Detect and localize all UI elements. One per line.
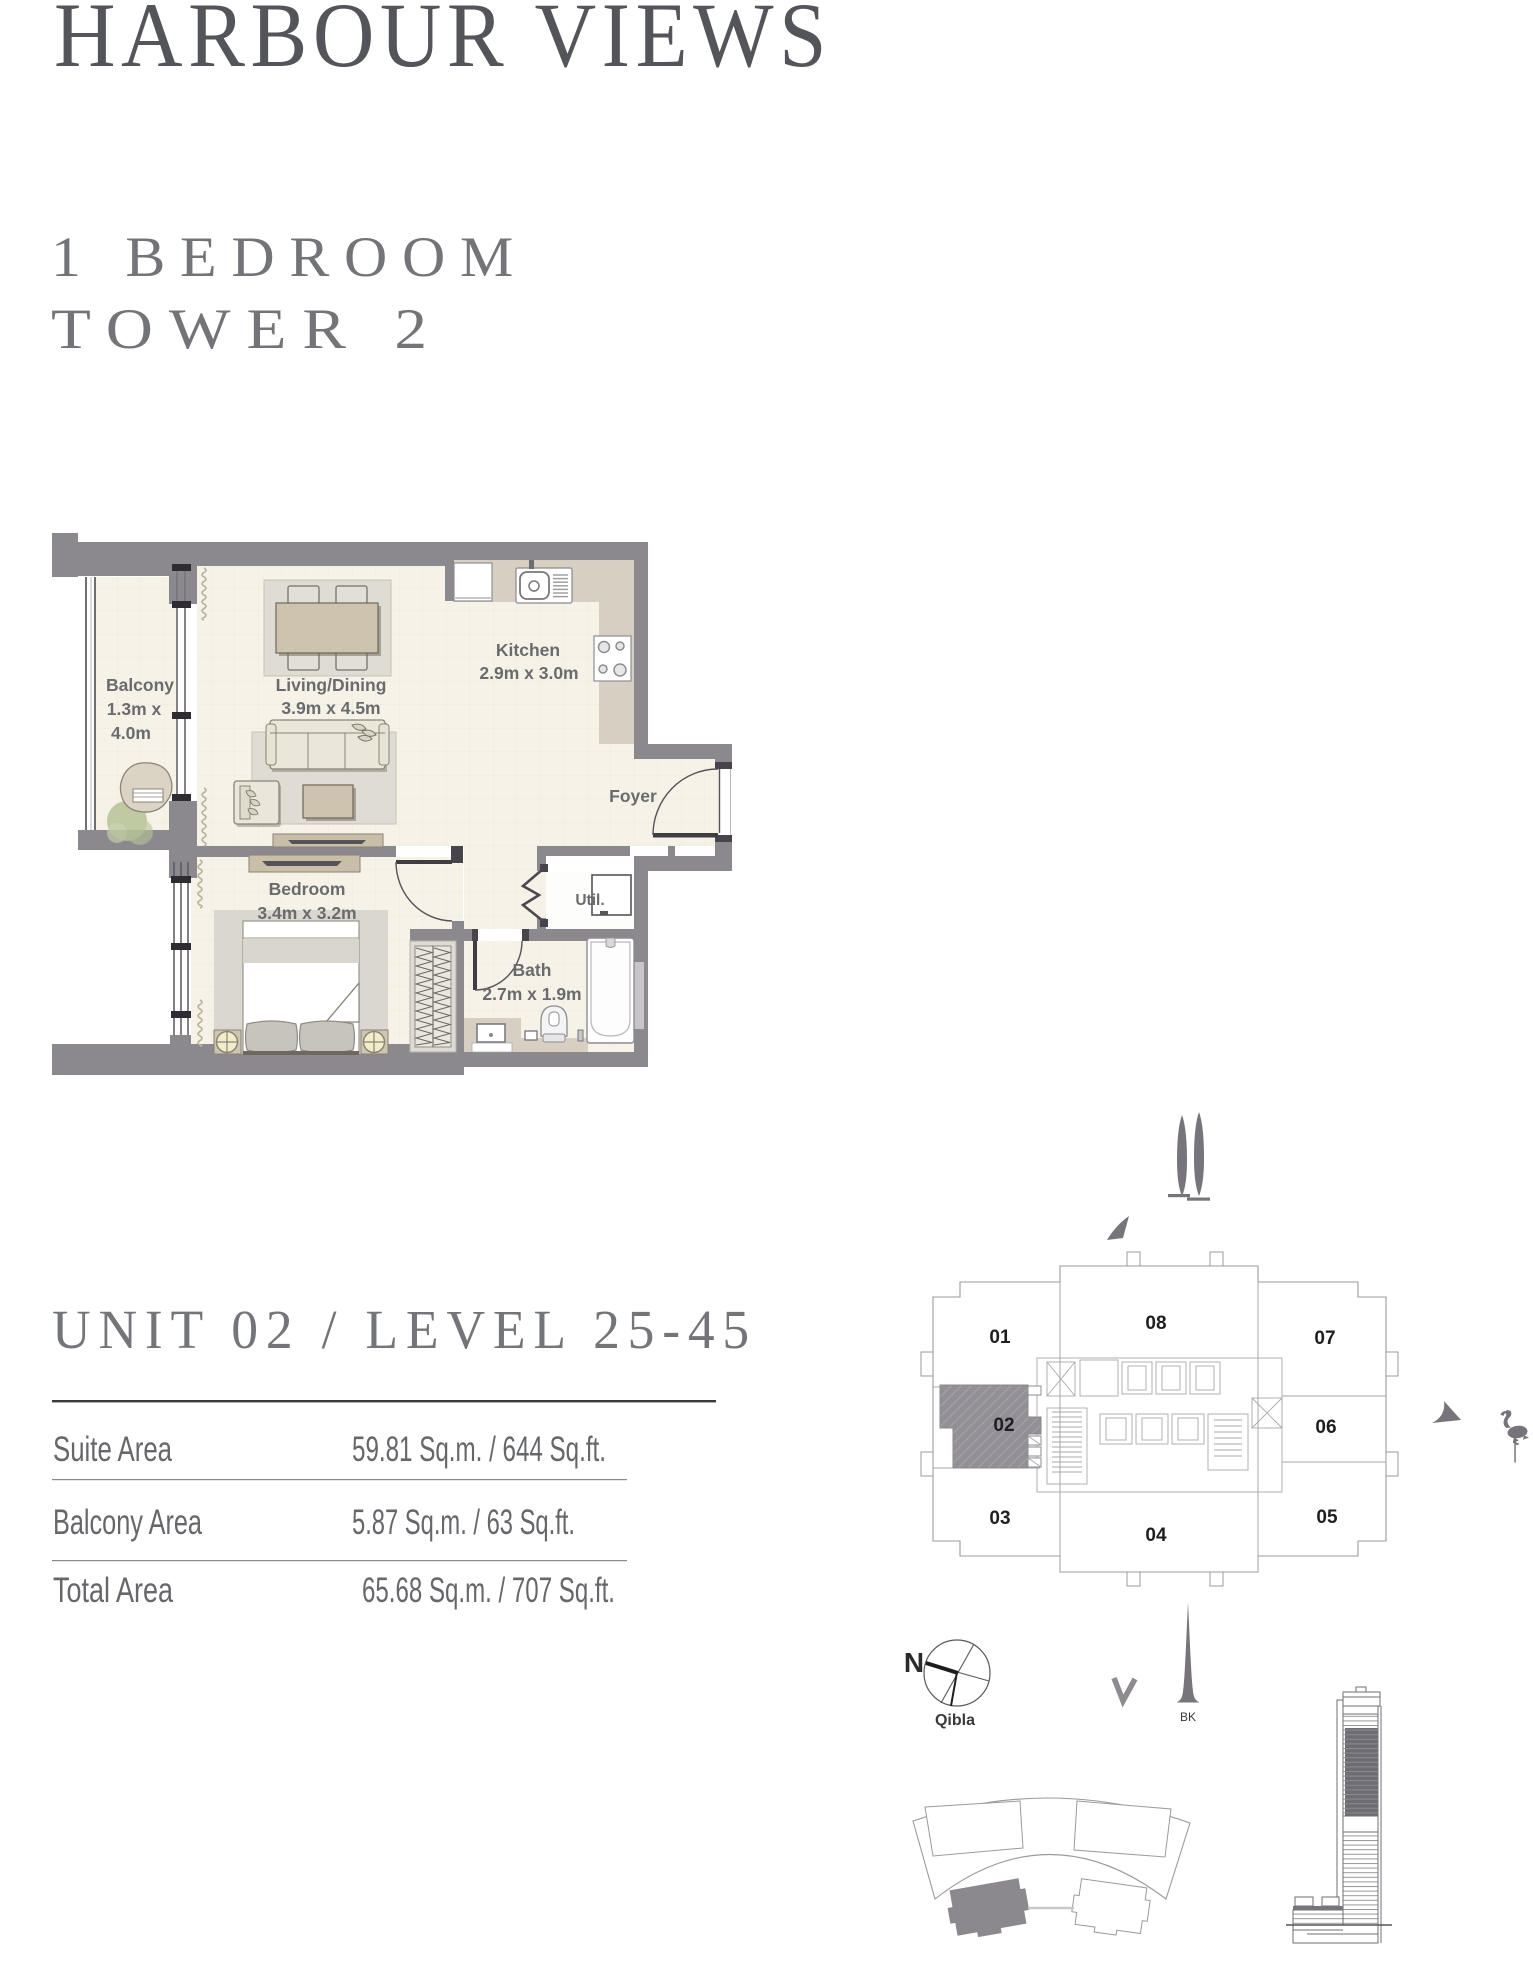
svg-text:Balcony: Balcony bbox=[106, 675, 174, 695]
svg-text:59.81 Sq.m. / 644 Sq.ft.: 59.81 Sq.m. / 644 Sq.ft. bbox=[352, 1430, 606, 1469]
svg-text:01: 01 bbox=[989, 1327, 1011, 1348]
svg-text:08: 08 bbox=[1145, 1313, 1166, 1334]
svg-text:4.0m: 4.0m bbox=[111, 723, 151, 743]
svg-text:Total Area: Total Area bbox=[53, 1571, 173, 1610]
svg-text:TOWER 2: TOWER 2 bbox=[51, 298, 443, 361]
svg-text:05: 05 bbox=[1316, 1507, 1338, 1528]
svg-text:2.7m x 1.9m: 2.7m x 1.9m bbox=[482, 984, 581, 1004]
svg-text:Balcony Area: Balcony Area bbox=[53, 1503, 202, 1542]
svg-text:Living/Dining: Living/Dining bbox=[276, 675, 387, 695]
svg-text:Bedroom: Bedroom bbox=[269, 879, 346, 899]
svg-text:65.68 Sq.m. / 707 Sq.ft.: 65.68 Sq.m. / 707 Sq.ft. bbox=[362, 1571, 615, 1610]
svg-text:1 BEDROOM: 1 BEDROOM bbox=[51, 226, 528, 289]
svg-text:BK: BK bbox=[1180, 1710, 1196, 1724]
svg-text:5.87 Sq.m. / 63 Sq.ft.: 5.87 Sq.m. / 63 Sq.ft. bbox=[352, 1503, 575, 1542]
svg-text:Qibla: Qibla bbox=[935, 1712, 975, 1729]
svg-text:Suite Area: Suite Area bbox=[53, 1430, 172, 1469]
svg-text:Kitchen: Kitchen bbox=[496, 640, 560, 660]
svg-text:07: 07 bbox=[1314, 1328, 1335, 1349]
svg-text:Foyer: Foyer bbox=[609, 786, 657, 806]
svg-text:3.9m x 4.5m: 3.9m x 4.5m bbox=[281, 698, 380, 718]
svg-text:2.9m x 3.0m: 2.9m x 3.0m bbox=[479, 663, 578, 683]
svg-text:N: N bbox=[904, 1647, 924, 1678]
svg-text:HARBOUR VIEWS: HARBOUR VIEWS bbox=[54, 0, 832, 86]
svg-text:04: 04 bbox=[1145, 1525, 1167, 1546]
svg-text:06: 06 bbox=[1315, 1417, 1336, 1438]
svg-text:02: 02 bbox=[993, 1415, 1014, 1436]
svg-text:Util.: Util. bbox=[575, 892, 604, 909]
svg-text:1.3m x: 1.3m x bbox=[107, 699, 162, 719]
svg-text:03: 03 bbox=[989, 1508, 1010, 1529]
svg-text:Bath: Bath bbox=[513, 960, 552, 980]
svg-text:UNIT 02 / LEVEL 25-45: UNIT 02 / LEVEL 25-45 bbox=[52, 1299, 757, 1360]
svg-text:3.4m x 3.2m: 3.4m x 3.2m bbox=[257, 903, 356, 923]
